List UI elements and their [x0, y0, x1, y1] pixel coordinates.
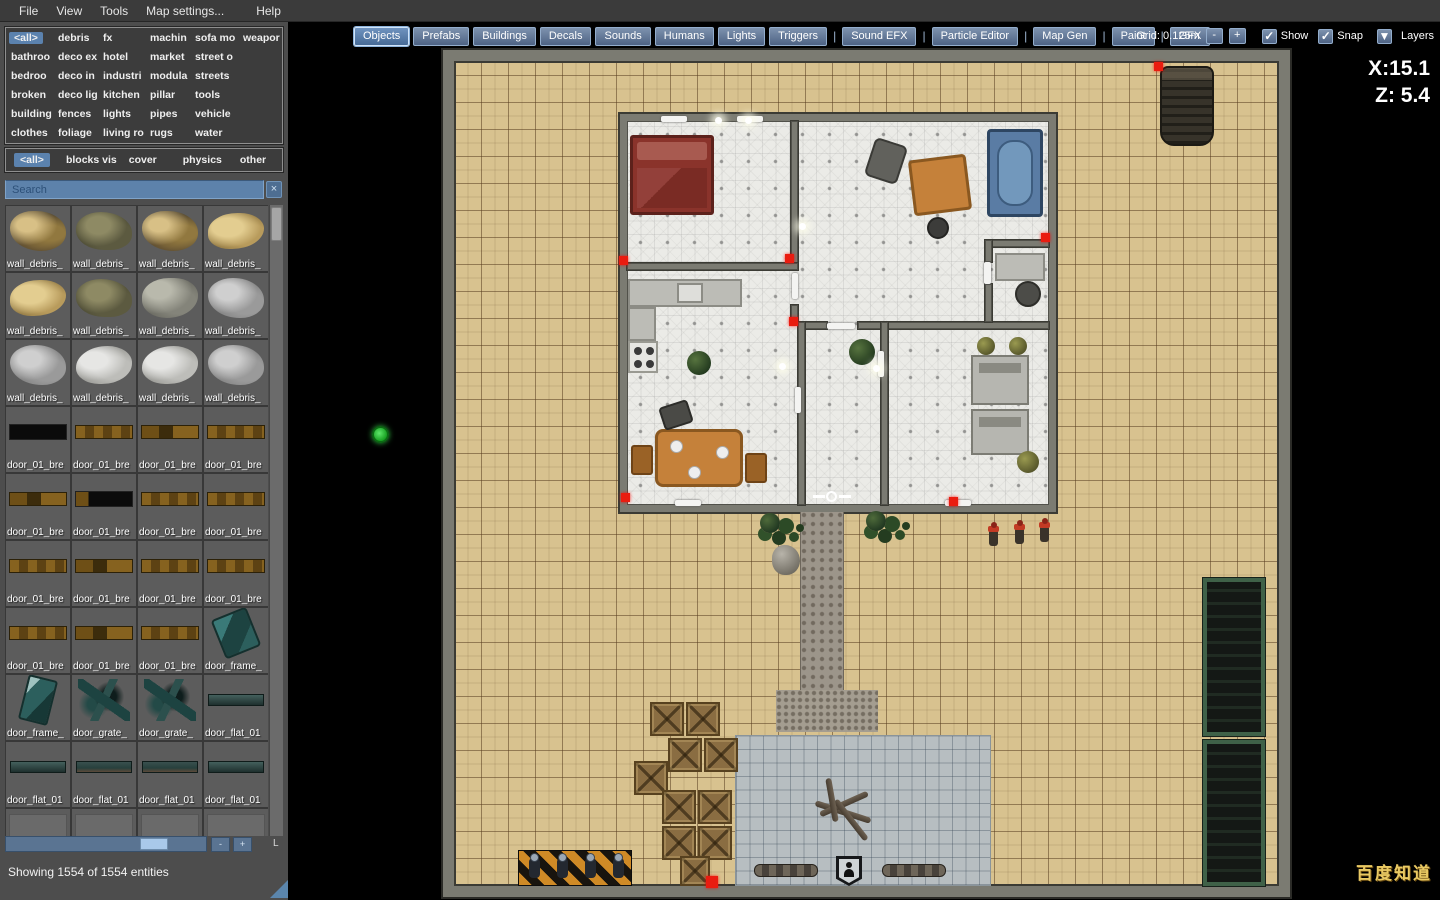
asset-label: wall_debris_	[139, 259, 202, 270]
filter-tabs: <all>blocks viscoverphysicsother	[5, 148, 283, 172]
dining-table[interactable]	[655, 429, 743, 487]
l-label: L	[273, 838, 279, 849]
crate[interactable]	[650, 702, 684, 736]
asset-thumbnail	[138, 340, 202, 390]
interior-wall	[791, 121, 798, 270]
menu-item-file[interactable]: File	[10, 4, 47, 18]
light-gizmo[interactable]	[873, 365, 880, 372]
category-water[interactable]: water	[193, 127, 241, 139]
asset-thumbnail	[204, 273, 268, 323]
asset-label: door_01_bre	[7, 661, 70, 672]
toilet[interactable]	[1015, 281, 1041, 307]
door-gizmo[interactable]	[813, 491, 851, 503]
interior-wall	[881, 322, 888, 505]
asset-label: door_frame_	[205, 661, 268, 672]
asset-label: door_flat_01	[205, 728, 268, 739]
asset-thumbnail	[72, 273, 136, 323]
category-market[interactable]: market	[148, 51, 193, 63]
asset-label: door_01_bre	[139, 527, 202, 538]
interior-wall	[985, 240, 992, 262]
chair[interactable]	[745, 453, 767, 483]
asset-label: door_grate_	[73, 728, 136, 739]
menu-item-help[interactable]: Help	[247, 4, 290, 18]
toolbar-button-particle-editor[interactable]: Particle Editor	[932, 27, 1018, 46]
asset-thumbnail	[72, 608, 136, 658]
asset-thumbnail	[6, 206, 70, 256]
search-row: ×	[5, 180, 283, 199]
asset-wall_debris[interactable]: wall_debris_	[137, 339, 203, 406]
toolbar-button-lights[interactable]: Lights	[718, 27, 765, 46]
menu-item-map-settings[interactable]: Map settings...	[137, 4, 233, 18]
asset-door_flat_01[interactable]: door_flat_01	[137, 741, 203, 808]
door-marker[interactable]	[789, 317, 798, 326]
asset-thumbnail	[72, 407, 136, 457]
plant[interactable]	[977, 337, 995, 355]
asset-door_01_bre[interactable]: door_01_bre	[137, 473, 203, 540]
coord-x: X:15.1	[1368, 55, 1430, 82]
asset-thumbnail	[138, 675, 202, 725]
category-bedroo[interactable]: bedroo	[9, 70, 56, 82]
bush[interactable]	[760, 513, 780, 533]
category-pipes[interactable]: pipes	[148, 108, 193, 120]
asset-thumbnail	[72, 675, 136, 725]
door-marker[interactable]	[1154, 62, 1163, 71]
asset-thumbnail	[138, 608, 202, 658]
toolbar-button-sounds[interactable]: Sounds	[595, 27, 650, 46]
category-foliage[interactable]: foliage	[56, 127, 101, 139]
interior-wall	[985, 284, 992, 322]
interior-wall	[798, 322, 805, 505]
asset-thumbnail	[72, 809, 136, 836]
search-input[interactable]	[5, 180, 264, 199]
layers-label: Layers	[1401, 30, 1434, 42]
category-living-ro[interactable]: living ro	[101, 127, 148, 139]
bed-pillow	[637, 142, 707, 160]
category-kitchen[interactable]: kitchen	[101, 89, 148, 101]
show-label: Show	[1281, 30, 1309, 42]
asset-thumbnail	[72, 742, 136, 792]
toolbar-separator: |	[1102, 29, 1105, 43]
asset-door_01_bre[interactable]: door_01_bre	[203, 406, 268, 473]
door[interactable]	[795, 387, 801, 413]
asset-door_01_bre[interactable]: door_01_bre	[5, 406, 71, 473]
horizontal-scrollbar[interactable]	[5, 836, 207, 852]
category-fences[interactable]: fences	[56, 108, 101, 120]
asset-thumbnail	[6, 608, 70, 658]
rock[interactable]	[772, 545, 800, 575]
door-marker[interactable]	[785, 254, 794, 263]
toolbar-button-buildings[interactable]: Buildings	[473, 27, 536, 46]
crate[interactable]	[668, 738, 702, 772]
plant[interactable]	[1009, 337, 1027, 355]
vertical-scrollbar-thumb[interactable]	[271, 207, 282, 241]
plant[interactable]	[849, 339, 875, 365]
filter-physics[interactable]: physics	[183, 154, 222, 166]
toolbar-button-triggers[interactable]: Triggers	[769, 27, 827, 46]
soldier-figure[interactable]	[528, 853, 541, 881]
entity-count-status: Showing 1554 of 1554 entities	[8, 865, 169, 879]
asset-door_flat_01[interactable]: door_flat_01	[71, 741, 137, 808]
toolbar-right-group: Grid: 0.125m - + ✓ Show ✓ Snap ▼ Layers	[1136, 22, 1434, 50]
snap-label: Snap	[1337, 30, 1363, 42]
category-weapor[interactable]: weapor	[241, 32, 285, 44]
category-broken[interactable]: broken	[9, 89, 56, 101]
horizontal-scrollbar-thumb[interactable]	[140, 838, 168, 850]
grid-plus-button[interactable]: +	[1229, 28, 1246, 44]
asset-thumbnail	[138, 474, 202, 524]
asset-label: door_01_bre	[7, 594, 70, 605]
asset-thumbnail	[6, 675, 70, 725]
asset-label: door_01_bre	[73, 527, 136, 538]
category-lights[interactable]: lights	[101, 108, 148, 120]
asset-empty	[137, 808, 203, 836]
soldier-figure[interactable]	[584, 853, 597, 881]
bush[interactable]	[866, 511, 886, 531]
building[interactable]	[620, 114, 1056, 512]
menu-item-view[interactable]: View	[47, 4, 91, 18]
category-clothes[interactable]: clothes	[9, 127, 56, 139]
asset-door_frame[interactable]: door_frame_	[5, 674, 71, 741]
watermark: 百度知道	[1356, 859, 1432, 884]
asset-wall_debris[interactable]: wall_debris_	[203, 339, 268, 406]
asset-thumbnail	[138, 206, 202, 256]
bathroom-sink[interactable]	[995, 253, 1045, 281]
category-streets[interactable]: streets	[193, 70, 241, 82]
crate[interactable]	[698, 790, 732, 824]
interior-wall	[627, 263, 798, 270]
asset-label: door_01_bre	[139, 594, 202, 605]
category-rugs[interactable]: rugs	[148, 127, 193, 139]
category-debris[interactable]: debris	[56, 32, 101, 44]
grid-size-label: Grid: 0.125m	[1136, 30, 1200, 42]
shipping-container[interactable]	[1203, 578, 1265, 736]
asset-wall_debris[interactable]: wall_debris_	[71, 272, 137, 339]
enemy-figure[interactable]	[988, 522, 999, 546]
asset-label: door_01_bre	[73, 460, 136, 471]
light-gizmo[interactable]	[779, 363, 786, 370]
asset-thumbnail	[6, 742, 70, 792]
asset-thumbnail	[72, 474, 136, 524]
asset-door_01_bre[interactable]: door_01_bre	[137, 540, 203, 607]
toolbar: ObjectsPrefabsBuildingsDecalsSoundsHuman…	[288, 22, 1440, 50]
category-street-o[interactable]: street o	[193, 51, 241, 63]
asset-thumbnail	[6, 407, 70, 457]
asset-label: door_01_bre	[7, 527, 70, 538]
asset-wall_debris[interactable]: wall_debris_	[5, 272, 71, 339]
asset-door_01_bre[interactable]: door_01_bre	[203, 473, 268, 540]
door-marker[interactable]	[706, 876, 718, 888]
asset-door_flat_01[interactable]: door_flat_01	[5, 741, 71, 808]
asset-door_01_bre[interactable]: door_01_bre	[5, 607, 71, 674]
asset-label: door_grate_	[139, 728, 202, 739]
toolbar-button-prefabs[interactable]: Prefabs	[413, 27, 469, 46]
category-deco-in[interactable]: deco in	[56, 70, 101, 82]
asset-thumbnail	[204, 340, 268, 390]
category-fx[interactable]: fx	[101, 32, 148, 44]
door[interactable]	[827, 323, 855, 329]
origin-gizmo[interactable]	[372, 426, 389, 443]
asset-door_frame[interactable]: door_frame_	[203, 607, 268, 674]
asset-label: wall_debris_	[139, 393, 202, 404]
category-all[interactable]: <all>	[9, 32, 43, 44]
office-chair[interactable]	[927, 217, 949, 239]
grid-minus-button[interactable]: -	[1206, 28, 1223, 44]
snap-checkbox[interactable]: ✓	[1318, 29, 1333, 44]
asset-label: wall_debris_	[139, 326, 202, 337]
category-tools[interactable]: tools	[193, 89, 241, 101]
chair[interactable]	[658, 399, 694, 431]
asset-thumbnail	[6, 340, 70, 390]
enemy-figure[interactable]	[1014, 520, 1025, 544]
crate[interactable]	[662, 790, 696, 824]
asset-label: wall_debris_	[205, 326, 268, 337]
hscroll-minus-button[interactable]: -	[211, 837, 230, 852]
bed-blanket	[637, 168, 707, 208]
crate[interactable]	[662, 826, 696, 860]
category-list: <all>bathroobedroobrokenbuildingclothesd…	[5, 27, 283, 144]
asset-thumbnail	[72, 541, 136, 591]
category-pillar[interactable]: pillar	[148, 89, 193, 101]
asset-label: door_01_bre	[73, 594, 136, 605]
asset-thumbnail	[204, 742, 268, 792]
filter-all[interactable]: <all>	[14, 153, 50, 167]
category-deco-ex[interactable]: deco ex	[56, 51, 101, 63]
asset-grid: wall_debris_wall_debris_wall_debris_wall…	[0, 205, 268, 836]
menu-bar: FileViewToolsMap settings...Help	[0, 0, 1440, 22]
asset-label: door_01_bre	[205, 527, 268, 538]
asset-label: wall_debris_	[7, 259, 70, 270]
soldier-figure[interactable]	[556, 853, 569, 881]
asset-thumbnail	[6, 541, 70, 591]
asset-wall_debris[interactable]: wall_debris_	[71, 205, 137, 272]
layers-dropdown-icon[interactable]: ▼	[1377, 29, 1392, 44]
door-marker[interactable]	[1041, 233, 1050, 242]
asset-thumbnail	[138, 273, 202, 323]
map-canvas[interactable]	[443, 50, 1290, 897]
asset-thumbnail	[6, 273, 70, 323]
asset-thumbnail	[204, 474, 268, 524]
armchair[interactable]	[864, 137, 909, 186]
asset-wall_debris[interactable]: wall_debris_	[203, 205, 268, 272]
desk[interactable]	[908, 154, 972, 217]
asset-label: door_frame_	[7, 728, 70, 739]
search-clear-icon[interactable]: ×	[266, 181, 282, 198]
coord-z: Z: 5.4	[1368, 82, 1430, 109]
asset-empty	[203, 808, 268, 836]
asset-door_01_bre[interactable]: door_01_bre	[71, 540, 137, 607]
asset-thumbnail	[204, 809, 268, 836]
asset-thumbnail	[204, 206, 268, 256]
door-marker[interactable]	[621, 493, 630, 502]
asset-wall_debris[interactable]: wall_debris_	[5, 339, 71, 406]
stove[interactable]	[628, 341, 658, 373]
bathtub[interactable]	[987, 129, 1043, 217]
asset-thumbnail	[138, 809, 202, 836]
stone-path	[800, 512, 844, 692]
door[interactable]	[675, 500, 701, 506]
crate[interactable]	[698, 826, 732, 860]
asset-door_01_bre[interactable]: door_01_bre	[5, 540, 71, 607]
asset-empty	[5, 808, 71, 836]
door-marker[interactable]	[949, 497, 958, 506]
door[interactable]	[878, 351, 884, 377]
map-editor-window: FileViewToolsMap settings...Help Objects…	[0, 0, 1440, 900]
filter-blocks-vis[interactable]: blocks vis	[66, 154, 117, 166]
map-ground	[454, 61, 1279, 886]
cursor-coordinates: X:15.1 Z: 5.4	[1368, 55, 1430, 109]
category-vehicle[interactable]: vehicle	[193, 108, 241, 120]
asset-thumbnail	[138, 407, 202, 457]
asset-door_grate[interactable]: door_grate_	[71, 674, 137, 741]
bathtub-basin	[997, 140, 1033, 206]
toolbar-buttons: ObjectsPrefabsBuildingsDecalsSoundsHuman…	[352, 27, 1212, 46]
door-marker[interactable]	[619, 256, 628, 265]
plant[interactable]	[1017, 451, 1039, 473]
machine[interactable]	[971, 409, 1029, 455]
asset-label: door_01_bre	[73, 661, 136, 672]
category-hotel[interactable]: hotel	[101, 51, 148, 63]
object-browser-panel: <all>bathroobedroobrokenbuildingclothesd…	[0, 22, 288, 900]
asset-label: door_01_bre	[205, 594, 268, 605]
interior-wall	[985, 240, 1049, 247]
vertical-scrollbar[interactable]	[269, 205, 283, 836]
asset-thumbnail	[204, 407, 268, 457]
crate[interactable]	[686, 702, 720, 736]
category-industri[interactable]: industri	[101, 70, 148, 82]
gravel-patch	[776, 690, 878, 732]
asset-thumbnail	[6, 809, 70, 836]
asset-label: door_flat_01	[205, 795, 268, 806]
asset-label: wall_debris_	[7, 326, 70, 337]
truck-object[interactable]	[1160, 66, 1214, 146]
asset-wall_debris[interactable]: wall_debris_	[5, 205, 71, 272]
barricade[interactable]	[754, 864, 818, 877]
chair[interactable]	[631, 445, 653, 475]
asset-thumbnail	[138, 742, 202, 792]
toolbar-button-map-gen[interactable]: Map Gen	[1033, 27, 1096, 46]
panel-resize-handle[interactable]	[270, 880, 288, 898]
asset-label: wall_debris_	[73, 259, 136, 270]
category-bathroo[interactable]: bathroo	[9, 51, 56, 63]
asset-door_grate[interactable]: door_grate_	[137, 674, 203, 741]
asset-empty	[71, 808, 137, 836]
shipping-container[interactable]	[1203, 740, 1265, 886]
asset-thumbnail	[204, 675, 268, 725]
toolbar-button-humans[interactable]: Humans	[655, 27, 714, 46]
crate[interactable]	[704, 738, 738, 772]
filter-other[interactable]: other	[240, 154, 266, 166]
category-building[interactable]: building	[9, 108, 56, 120]
asset-door_flat_01[interactable]: door_flat_01	[203, 741, 268, 808]
light-gizmo[interactable]	[799, 223, 806, 230]
door[interactable]	[792, 273, 798, 299]
asset-label: door_01_bre	[205, 460, 268, 471]
toolbar-separator: |	[922, 29, 925, 43]
asset-label: wall_debris_	[73, 393, 136, 404]
asset-door_01_bre[interactable]: door_01_bre	[71, 607, 137, 674]
asset-wall_debris[interactable]: wall_debris_	[71, 339, 137, 406]
category-modula[interactable]: modula	[148, 70, 193, 82]
toolbar-button-decals[interactable]: Decals	[540, 27, 592, 46]
asset-label: door_01_bre	[7, 460, 70, 471]
asset-door_01_bre[interactable]: door_01_bre	[71, 473, 137, 540]
category-sofa-mo[interactable]: sofa mo	[193, 32, 241, 44]
enemy-figure[interactable]	[1039, 518, 1050, 542]
filter-cover[interactable]: cover	[129, 154, 157, 166]
show-checkbox[interactable]: ✓	[1262, 29, 1277, 44]
soldier-figure[interactable]	[612, 853, 625, 881]
light-gizmo[interactable]	[715, 117, 722, 124]
category-machin[interactable]: machin	[148, 32, 193, 44]
asset-label: door_01_bre	[139, 661, 202, 672]
menu-item-tools[interactable]: Tools	[91, 4, 137, 18]
machine[interactable]	[971, 355, 1029, 405]
door[interactable]	[984, 262, 991, 284]
door[interactable]	[661, 116, 687, 122]
asset-thumbnail	[72, 206, 136, 256]
asset-label: wall_debris_	[73, 326, 136, 337]
toolbar-separator: |	[1024, 29, 1027, 43]
bed-double[interactable]	[630, 135, 714, 215]
asset-label: door_flat_01	[139, 795, 202, 806]
hscroll-plus-button[interactable]: +	[233, 837, 252, 852]
asset-thumbnail	[204, 541, 268, 591]
asset-door_01_bre[interactable]: door_01_bre	[203, 540, 268, 607]
kitchen-counter[interactable]	[628, 307, 656, 341]
asset-label: door_flat_01	[73, 795, 136, 806]
asset-thumbnail	[138, 541, 202, 591]
toolbar-button-sound-efx[interactable]: Sound EFX	[842, 27, 916, 46]
asset-door_01_bre[interactable]: door_01_bre	[5, 473, 71, 540]
asset-wall_debris[interactable]: wall_debris_	[137, 205, 203, 272]
asset-wall_debris[interactable]: wall_debris_	[203, 272, 268, 339]
asset-door_01_bre[interactable]: door_01_bre	[137, 406, 203, 473]
barricade[interactable]	[882, 864, 946, 877]
toolbar-separator: |	[833, 29, 836, 43]
asset-door_flat_01[interactable]: door_flat_01	[203, 674, 268, 741]
asset-door_01_bre[interactable]: door_01_bre	[137, 607, 203, 674]
light-gizmo[interactable]	[745, 117, 752, 124]
asset-label: door_01_bre	[139, 460, 202, 471]
asset-door_01_bre[interactable]: door_01_bre	[71, 406, 137, 473]
asset-label: wall_debris_	[205, 259, 268, 270]
kitchen-sink[interactable]	[677, 283, 703, 303]
plant[interactable]	[687, 351, 711, 375]
asset-label: wall_debris_	[7, 393, 70, 404]
asset-thumbnail	[72, 340, 136, 390]
asset-wall_debris[interactable]: wall_debris_	[137, 272, 203, 339]
asset-label: door_flat_01	[7, 795, 70, 806]
category-deco-lig[interactable]: deco lig	[56, 89, 101, 101]
asset-label: wall_debris_	[205, 393, 268, 404]
asset-thumbnail	[204, 608, 268, 658]
toolbar-button-objects[interactable]: Objects	[354, 27, 409, 46]
asset-thumbnail	[6, 474, 70, 524]
